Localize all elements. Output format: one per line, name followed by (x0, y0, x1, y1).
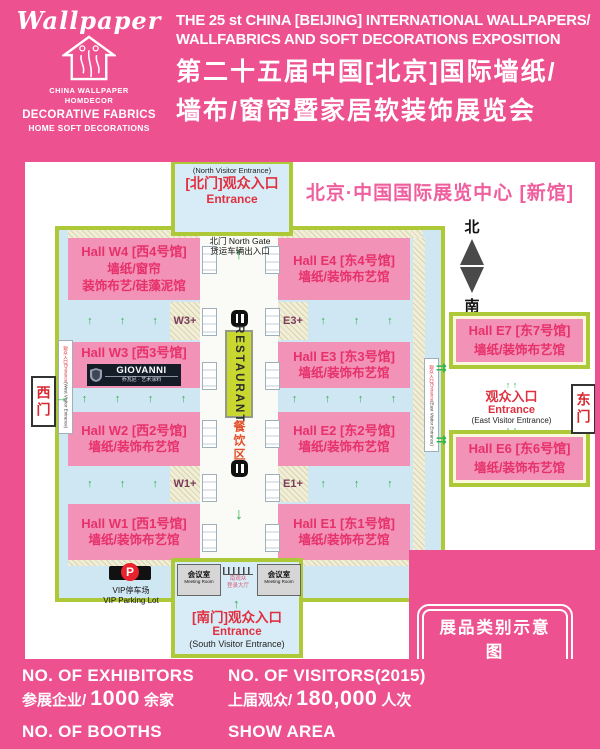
west-walkway: ↑ ↑ ↑ ↑ (68, 388, 200, 410)
restaurant-sign: RESTAURANT (225, 330, 253, 418)
label-e1plus: E1+ (278, 466, 308, 502)
restaurant-label: RESTAURANT (233, 325, 245, 423)
meeting-room-en: Meeting Room (178, 579, 220, 585)
compass-north: 北 (455, 216, 489, 237)
turnstile-icon (223, 567, 253, 575)
exhibitors-cn: 参展企业/ (22, 689, 86, 710)
hall-e7: Hall E7 [东7号馆] 墙纸/装饰布艺馆 (449, 312, 590, 369)
logo-org-line2: HOMDECOR (10, 96, 168, 106)
exhibitors-label: NO. OF EXHIBITORS (22, 666, 194, 686)
giovanni-shield-icon (90, 368, 102, 382)
booths-label: NO. OF BOOTHS (22, 722, 162, 742)
east-entrance-en: Entrance (449, 404, 574, 416)
west-strip-cn: 观众入口Entrance (63, 346, 69, 382)
label-w3plus: W3+ (170, 302, 200, 340)
hall-e2: Hall E2 [东2号馆] 墙纸/装饰布艺馆 (278, 412, 410, 466)
visitors-label: NO. OF VISITORS(2015) (228, 666, 426, 686)
down-arrow-icon: ↓ (235, 506, 243, 524)
up-arrow-icon: ↑ (108, 304, 138, 338)
logo-fabrics-line: DECORATIVE FABRICS (10, 109, 168, 121)
up-arrow-icon: ↑ (391, 393, 397, 405)
escalator (202, 524, 217, 552)
up-arrow-icon: ↑ (75, 304, 105, 338)
hall-e1-desc: 墙纸/装饰布艺馆 (278, 532, 410, 549)
up-arrow-icon: ↑ (148, 393, 154, 405)
hall-w2: Hall W2 [西2号馆] 墙纸/装饰布艺馆 (68, 412, 200, 466)
hall-w4: Hall W4 [西4号馆] 墙纸/窗帘 装饰布艺/硅藻泥馆 (68, 238, 200, 300)
south-visitor-entrance: [南门]观众入口 Entrance (South Visitor Entranc… (173, 610, 301, 650)
north-entrance-en: Entrance (175, 192, 289, 206)
hall-e1-name: Hall E1 [东1号馆] (278, 515, 410, 533)
visitors-cn: 上届观众/ (228, 689, 292, 710)
title-english-line2: WALLFABRICS AND SOFT DECORATIONS EXPOSIT… (176, 31, 600, 50)
connector-cells: ↑ ↑ ↑ (75, 468, 170, 500)
parking-icon: P (109, 566, 151, 580)
hall-e6-name: Hall E6 [东6号馆] (456, 440, 583, 459)
west-gate-label: 西门 (34, 385, 54, 419)
hall-w3: Hall W3 [西3号馆] GIOVANNI 乔瓦尼 · 艺术涂料 (68, 342, 200, 388)
east-gate-sign: 东门 (571, 384, 595, 434)
hall-e4: Hall E4 [东4号馆] 墙纸/装饰布艺馆 (278, 238, 410, 300)
hall-w1: Hall W1 [西1号馆] 墙纸/装饰布艺馆 (68, 504, 200, 560)
hall-e1: Hall E1 [东1号馆] 墙纸/装饰布艺馆 (278, 504, 410, 560)
escalator (202, 362, 217, 390)
connector-cells: ↑ ↑ ↑ (308, 468, 405, 500)
hall-w3-name: Hall W3 [西3号馆] (68, 344, 200, 362)
connector-cells: ↑ ↑ ↑ (308, 304, 405, 338)
hall-w2-name: Hall W2 [西2号馆] (68, 422, 200, 440)
hall-e4-desc: 墙纸/装饰布艺馆 (278, 269, 410, 286)
logo-org-line1: CHINA WALLPAPER (10, 86, 168, 96)
label-e3plus: E3+ (278, 302, 308, 340)
escalator (265, 420, 280, 448)
double-arrow-icon: ⇉ (436, 360, 447, 376)
up-arrow-icon: ↑ (140, 468, 170, 500)
registration-hall-cn1: 南观众 (221, 576, 255, 583)
south-entrance-en: Entrance (173, 626, 301, 639)
hall-w4-desc1: 墙纸/窗帘 (68, 261, 200, 278)
wallpaper-house-icon (62, 35, 116, 81)
floor-plan-map: 北京·中国国际展览中心 [新馆] (North Visitor Entrance… (25, 162, 595, 659)
hall-e6: Hall E6 [东6号馆] 墙纸/装饰布艺馆 (449, 430, 590, 487)
vip-parking-cn: VIP停车场 (81, 586, 181, 596)
north-gate-sub: 货运车辆出入口 (193, 246, 287, 256)
north-gate-label: 北门 North Gate 货运车辆出入口 (193, 236, 287, 256)
east-gate-label: 东门 (574, 392, 594, 426)
exhibitors-unit: 余家 (144, 689, 174, 710)
up-arrow-icon: ↑ (233, 596, 240, 611)
hall-e2-name: Hall E2 [东2号馆] (278, 422, 410, 440)
north-gate-cn: 北门 North Gate (193, 236, 287, 246)
escalator (202, 420, 217, 448)
up-arrow-icon: ↑ (308, 304, 338, 338)
north-entrance: (North Visitor Entrance) [北门]观众入口 Entran… (171, 162, 293, 236)
visitors-value: 上届观众/ 180,000 人次 (228, 686, 411, 711)
hall-e3: Hall E3 [东3号馆] 墙纸/装饰布艺馆 (278, 342, 410, 388)
exhibit-type-cn: 展品类别示意图 (432, 614, 558, 659)
meeting-room-en: Meeting Room (258, 579, 300, 585)
hall-e6-desc: 墙纸/装饰布艺馆 (456, 459, 583, 477)
hall-w4-desc2: 装饰布艺/硅藻泥馆 (68, 278, 200, 295)
west-entrance-strip: 观众入口Entrance (West Visitor Entrance) (58, 340, 73, 434)
north-entrance-sub: (North Visitor Entrance) (175, 166, 289, 175)
vip-parking-label: VIP停车场 VIP Parking Lot (81, 586, 181, 606)
up-arrow-icon: ↑ (75, 468, 105, 500)
east-visitor-entrance: ↑ ↑ 观众入口 Entrance (East Visitor Entrance… (449, 380, 574, 435)
up-arrow-icon: ↑ (375, 468, 405, 500)
compass-south-arrow (460, 267, 484, 293)
up-arrow-icon: ↑ (375, 304, 405, 338)
connector-cells: ↑ ↑ ↑ (75, 304, 170, 338)
visitors-number: 180,000 (296, 686, 377, 711)
hall-e2-desc: 墙纸/装饰布艺馆 (278, 439, 410, 456)
hall-w4-name: Hall W4 [西4号馆] (68, 243, 200, 261)
hall-e7-desc: 墙纸/装饰布艺馆 (456, 341, 583, 359)
escalator (202, 308, 217, 336)
logo-soft-line: HOME SOFT DECORATIONS (10, 123, 168, 133)
up-arrow-icon: ↑ (82, 393, 88, 405)
south-entrance-cn: [南门]观众入口 (173, 610, 301, 626)
meeting-room-right: 会议室 Meeting Room (257, 564, 301, 596)
parking-p-icon: P (121, 563, 139, 581)
up-arrow-icon: ↑ (358, 393, 364, 405)
vip-parking-en: VIP Parking Lot (81, 596, 181, 606)
meeting-room-left: 会议室 Meeting Room (177, 564, 221, 596)
poster-title: THE 25 st CHINA [BEIJING] INTERNATIONAL … (176, 12, 600, 128)
giovanni-wordmark: GIOVANNI (105, 366, 178, 376)
hall-e7-name: Hall E7 [东7号馆] (456, 322, 583, 341)
escalator (265, 524, 280, 552)
right-arrow-icon: → (55, 390, 68, 405)
escalator (265, 362, 280, 390)
up-arrow-icon: ↑ (325, 393, 331, 405)
east-strip-sub: (East Visitor Entrance) (429, 401, 435, 446)
hall-e3-name: Hall E3 [东3号馆] (278, 348, 410, 366)
visitors-unit: 人次 (381, 689, 411, 710)
exhibitors-number: 1000 (90, 686, 140, 711)
brand-logo: Wallpaper CHINA WALLPAPER HOMDECOR DECOR… (10, 6, 168, 133)
west-strip-sub: (West Visitor Entrance) (63, 382, 69, 428)
exposition-poster: Wallpaper CHINA WALLPAPER HOMDECOR DECOR… (0, 0, 600, 749)
up-arrow-icon: ↑ (292, 393, 298, 405)
north-entrance-cn: [北门]观众入口 (175, 175, 289, 192)
hall-w1-name: Hall W1 [西1号馆] (68, 515, 200, 533)
up-arrow-icon: ↑ (140, 304, 170, 338)
title-chinese-line2: 墙布/窗帘暨家居软装饰展览会 (176, 94, 600, 128)
title-english-line1: THE 25 st CHINA [BEIJING] INTERNATIONAL … (176, 12, 600, 31)
label-w1plus: W1+ (170, 466, 200, 502)
up-arrow-icon: ↑ (341, 468, 371, 500)
up-arrow-icon: ↑ (341, 304, 371, 338)
hall-e3-desc: 墙纸/装饰布艺馆 (278, 365, 410, 382)
title-chinese-line1: 第二十五届中国[北京]国际墙纸/ (176, 55, 600, 89)
meeting-room-cn: 会议室 (258, 570, 300, 579)
east-strip-cn: 观众入口Entrance (429, 365, 435, 401)
compass: 北 南 (455, 216, 489, 316)
east-entrance-sub: (East Visitor Entrance) (449, 416, 574, 425)
east-walkway: ↑ ↑ ↑ ↑ (278, 388, 410, 410)
hall-w2-desc: 墙纸/装饰布艺馆 (68, 439, 200, 456)
hall-e4-name: Hall E4 [东4号馆] (278, 252, 410, 270)
hatch-strip (278, 230, 423, 238)
registration-hall-label: 南观众 登录大厅 (221, 576, 255, 590)
show-area-label: SHOW AREA (228, 722, 336, 742)
giovanni-banner: GIOVANNI 乔瓦尼 · 艺术涂料 (87, 364, 181, 386)
east-entrance-cn: 观众入口 (449, 390, 574, 404)
escalator (202, 474, 217, 502)
exhibit-type-box: 展品类别示意图 EXHIBIT TYPE (417, 604, 573, 659)
west-gate-sign: 西门 (31, 376, 56, 427)
up-arrow-icon: ↑ (108, 468, 138, 500)
dining-area-label: 餐饮区 (231, 420, 248, 462)
up-arrow-icon: ↑ (308, 468, 338, 500)
double-arrow-icon: ⇉ (436, 432, 447, 448)
south-entrance-sub: (South Visitor Entrance) (173, 639, 301, 650)
hall-w1-desc: 墙纸/装饰布艺馆 (68, 532, 200, 549)
meeting-room-cn: 会议室 (178, 570, 220, 579)
restaurant-icon (231, 460, 248, 477)
venue-title: 北京·中国国际展览中心 [新馆] (290, 174, 590, 214)
brand-wordmark: Wallpaper (10, 6, 168, 35)
giovanni-sub: 乔瓦尼 · 艺术涂料 (105, 376, 178, 384)
exhibitors-value: 参展企业/ 1000 余家 (22, 686, 174, 711)
registration-hall-cn2: 登录大厅 (221, 583, 255, 590)
up-arrow-icon: ↑ (181, 393, 187, 405)
compass-north-arrow (460, 239, 484, 265)
up-arrow-icon: ↑ (115, 393, 121, 405)
